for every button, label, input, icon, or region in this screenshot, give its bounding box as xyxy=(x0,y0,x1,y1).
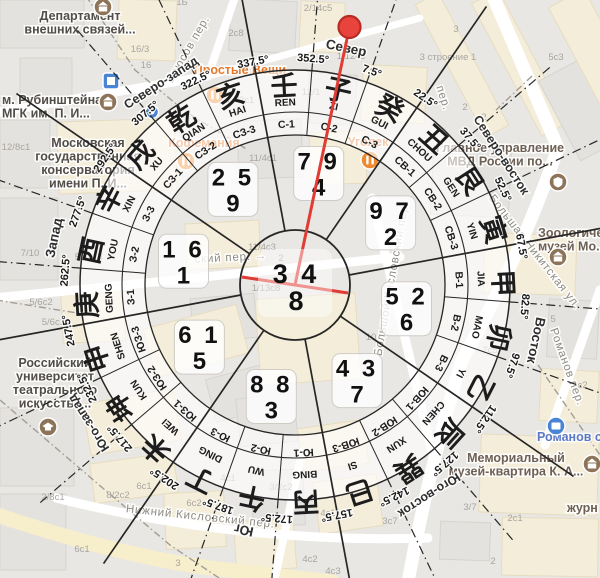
flying-star-top-row: 9 7 xyxy=(369,198,411,225)
mountain-hanzi-label: 壬 xyxy=(270,71,299,102)
flying-star-top-row: 8 8 xyxy=(250,372,292,399)
mountain-pinyin-label: GENG xyxy=(103,283,116,313)
sector-ring-label: Ю-1 xyxy=(293,446,314,459)
mountain-hanzi-label: 丙 xyxy=(292,486,321,517)
map-canvas[interactable]: 1Б16/3162с82/14с51/12с512/133 строение 1… xyxy=(0,0,600,578)
building-number: 3 xyxy=(175,558,180,569)
north-pin-circle[interactable] xyxy=(339,16,361,38)
education-poi-icon-gitis[interactable] xyxy=(39,418,57,436)
flying-star-bottom-row: 1 xyxy=(177,262,190,289)
area-label[interactable]: музей Мо... xyxy=(538,240,600,254)
building-number: 1Б xyxy=(176,0,188,8)
flying-star-bottom-row: 6 xyxy=(400,310,413,337)
degree-label: 352.5° xyxy=(297,52,330,66)
building-number: 12/8с1 xyxy=(2,142,31,153)
building-number: 4с2 xyxy=(302,554,317,565)
mountain-pinyin-label: BING xyxy=(292,468,318,480)
mountain-hanzi-label: 甲 xyxy=(487,269,518,298)
building-number: 2/14с5 xyxy=(304,3,333,14)
building-number: 16/3 xyxy=(131,44,150,55)
museum-poi-icon-zoological[interactable] xyxy=(549,248,567,266)
building-number: 5/6с2 xyxy=(29,297,52,308)
poi-label[interactable]: Романов с xyxy=(537,430,600,444)
map-building xyxy=(20,58,72,98)
building-number: 4с3 xyxy=(325,566,340,577)
degree-label: 262.5° xyxy=(58,254,72,287)
government-poi-icon[interactable] xyxy=(94,0,112,16)
feng-shui-compass-map-overlay: 1Б16/3162с82/14с51/12с512/133 строение 1… xyxy=(0,0,600,578)
sector-ring-label: З-1 xyxy=(125,289,138,306)
flying-star-bottom-row: 5 xyxy=(193,348,206,375)
map-building xyxy=(0,408,74,486)
building-number: 6с1 xyxy=(136,481,151,492)
building-number: 3/7 xyxy=(463,502,476,513)
flying-star-top-row: 5 2 xyxy=(385,284,427,311)
building-number: 2с1 xyxy=(507,513,522,524)
flying-star-bottom-row: 7 xyxy=(350,382,363,409)
degree-label: 172.5° xyxy=(261,511,294,525)
north-pin-marker[interactable] xyxy=(339,16,361,38)
museum-poi-icon-memorial[interactable] xyxy=(583,455,600,473)
building-number: 2с8 xyxy=(228,28,243,39)
building-number: 6с1 xyxy=(74,544,89,555)
building-number: 7/10 xyxy=(21,248,40,259)
map-building xyxy=(502,517,599,577)
building-number: 2 xyxy=(462,102,467,113)
area-label[interactable]: внешних связей... xyxy=(24,23,135,37)
building-number: 8/2с2 xyxy=(106,490,129,501)
building-number: 2/8с1 xyxy=(41,492,64,503)
building-number: 3 xyxy=(453,24,458,35)
mountain-hanzi-label: 庚 xyxy=(71,291,103,320)
cinema-poi-icon-romanov[interactable] xyxy=(547,417,565,435)
building-number: 5 xyxy=(550,314,555,325)
police-poi-icon-mvd[interactable] xyxy=(549,173,567,191)
building-number: 6с2 xyxy=(186,498,201,509)
building-number: 3с7 xyxy=(382,516,397,527)
sector-ring-label: С-1 xyxy=(278,118,296,131)
flying-star-bottom-row: 9 xyxy=(226,190,239,217)
flying-star-top-row: 6 1 xyxy=(178,322,220,349)
map-building xyxy=(439,521,490,561)
center-star-top-row: 3 4 xyxy=(273,259,320,289)
flying-star-bottom-row: 2 xyxy=(384,224,397,251)
area-label[interactable]: м. Рубинштейна xyxy=(2,93,103,107)
area-label[interactable]: журн xyxy=(566,501,598,515)
center-star-bottom-row: 8 xyxy=(288,286,303,316)
museum-poi-icon[interactable] xyxy=(99,93,117,111)
building-number: 2 xyxy=(490,556,495,567)
building-number: 16 xyxy=(141,60,152,71)
area-label[interactable]: музей-квартира К. А... xyxy=(449,465,584,479)
area-label[interactable]: Мемориальный xyxy=(467,451,565,465)
degree-label: 82.5° xyxy=(517,293,531,320)
sector-ring-label: В-1 xyxy=(452,271,465,289)
flying-star-top-row: 1 6 xyxy=(162,236,204,263)
map-building xyxy=(229,0,298,54)
building-number: 5с3 xyxy=(548,52,563,63)
flying-star-top-row: 4 3 xyxy=(336,356,378,383)
flying-star-bottom-row: 3 xyxy=(265,398,278,425)
mountain-pinyin-label: JIA xyxy=(474,271,486,287)
flying-star-top-row: 2 5 xyxy=(212,164,254,191)
